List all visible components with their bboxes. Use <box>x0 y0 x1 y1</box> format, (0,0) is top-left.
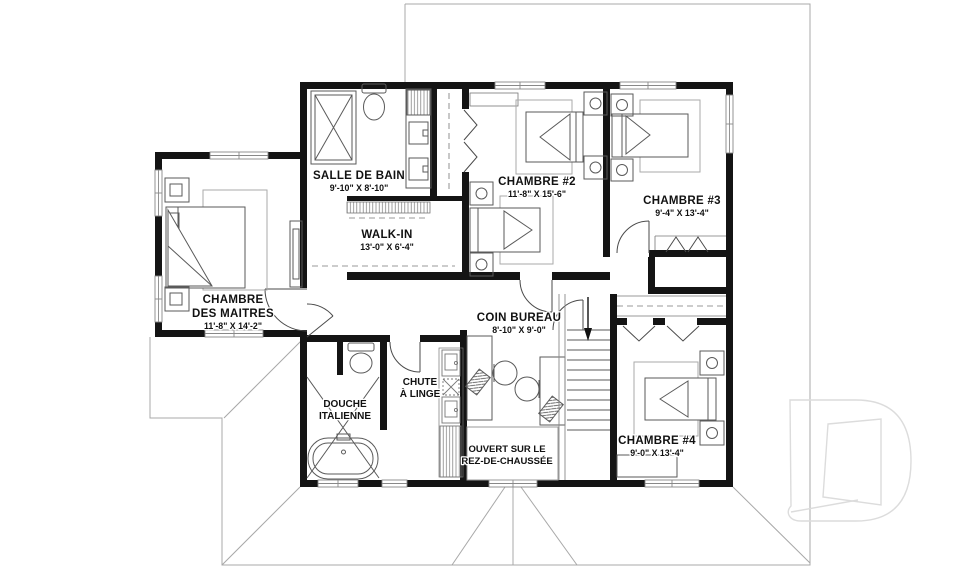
label-douche-line2: ITALIENNE <box>319 411 371 422</box>
door-laundry-vestibule <box>390 342 420 372</box>
wall-laundry-top <box>420 335 467 342</box>
wall-bedroom2-bottom-right <box>552 272 610 280</box>
wall-bedroom4-closet-stub2 <box>653 318 665 325</box>
stair-down-arrow <box>584 297 592 341</box>
floor-plan-drawing: SALLE DE BAIN 9'-10" X 8'-10" WALK-IN 13… <box>0 0 960 569</box>
window <box>645 480 699 487</box>
wall-exterior-left-upper <box>300 89 307 159</box>
wall-walkin-bottom <box>347 272 462 280</box>
wall-vestibule-vertical <box>648 257 655 294</box>
label-master-line1: CHAMBRE <box>203 294 264 306</box>
wall-bathroom-walkin-divider <box>347 196 462 201</box>
window <box>210 152 268 159</box>
wall-corridor-bottom <box>307 335 390 342</box>
wall-bedroom2-left-lower <box>462 172 469 280</box>
window <box>205 330 263 337</box>
door-bedroom2 <box>520 280 552 312</box>
nightstand <box>611 94 633 116</box>
dresser <box>617 455 677 477</box>
window <box>726 95 733 153</box>
staircase <box>559 294 610 480</box>
window <box>155 276 162 322</box>
label-coin-bureau: COIN BUREAU <box>477 312 561 324</box>
label-ouvert-line2: REZ-DE-CHAUSSÉE <box>461 456 552 467</box>
wall-bedroom4-closet-stub3 <box>697 318 733 325</box>
linen-shelves <box>440 426 461 477</box>
label-chambre-4-dims: 9'-0" X 13'-4" <box>630 448 684 458</box>
window <box>318 480 358 487</box>
desk-item <box>466 369 491 395</box>
wall-bedroom3-bottom <box>649 250 733 257</box>
bedroom4-furniture <box>617 351 724 477</box>
floor-plan-page: SALLE DE BAIN 9'-10" X 8'-10" WALK-IN 13… <box>0 0 960 569</box>
chair <box>493 361 517 385</box>
freestanding-bathtub <box>308 434 378 479</box>
window <box>620 82 676 89</box>
label-chute-line1: CHUTE <box>403 377 438 388</box>
laundry-chute <box>443 379 459 395</box>
wall-bedroom4-closet-stub1 <box>617 318 627 325</box>
nightstand <box>165 287 189 311</box>
laundry-unit <box>442 350 460 376</box>
wall-vestibule-horizontal <box>655 287 733 294</box>
bifold-closet-bedroom4 <box>623 326 699 341</box>
chair <box>515 377 539 401</box>
bifold-closet-bedroom2 <box>464 110 477 172</box>
wall-shower-room-right <box>380 342 387 430</box>
vanity-double-sink <box>406 89 431 188</box>
door-suite-passage <box>307 304 333 337</box>
label-douche-line1: DOUCHE <box>323 399 367 410</box>
window <box>489 480 537 487</box>
door-bedroom3 <box>617 221 649 253</box>
toilet <box>362 84 386 120</box>
label-coin-bureau-dims: 8'-10" X 9'-0" <box>492 325 546 335</box>
wall-master-right <box>300 159 307 288</box>
label-chambre-2-dims: 11'-8" X 15'-6" <box>508 189 566 199</box>
label-chambre-3-dims: 9'-4" X 13'-4" <box>655 208 709 218</box>
desk-item <box>539 396 564 422</box>
wall-stair-bedroom4 <box>610 294 617 480</box>
label-salle-de-bain-dims: 9'-10" X 8'-10" <box>330 183 389 193</box>
office-furniture <box>466 336 565 425</box>
label-master-dims: 11'-8" X 14'-2" <box>204 321 262 331</box>
toilet <box>348 343 374 373</box>
label-master-line2: DES MAITRES <box>192 308 274 320</box>
master-bedroom-furniture <box>165 178 302 311</box>
shower-floor-x <box>307 377 379 478</box>
shower <box>311 91 356 164</box>
wall-toilet-nook-stub <box>337 342 343 375</box>
nightstand <box>470 182 493 205</box>
wall-bedroom2-left-upper <box>462 89 469 109</box>
nightstand <box>611 159 633 181</box>
label-chambre-3: CHAMBRE #3 <box>643 195 721 207</box>
wall-exterior-left-lower <box>300 337 307 480</box>
brand-watermark-d-logo <box>788 400 911 521</box>
nightstand <box>700 421 724 445</box>
label-walk-in: WALK-IN <box>361 229 412 241</box>
bedroom3-furniture <box>611 94 700 181</box>
nightstand <box>165 178 189 202</box>
laundry-unit <box>442 397 460 423</box>
window <box>155 170 162 216</box>
label-ouvert-line1: OUVERT SUR LE <box>468 444 545 455</box>
bifold-closet-bedroom3 <box>666 237 708 252</box>
label-salle-de-bain: SALLE DE BAIN <box>313 170 405 182</box>
laundry-strip <box>439 348 463 477</box>
label-walk-in-dims: 13'-0" X 6'-4" <box>360 242 414 252</box>
nightstand <box>700 351 724 375</box>
window <box>382 480 407 487</box>
label-chambre-2: CHAMBRE #2 <box>498 176 576 188</box>
window <box>495 82 545 89</box>
room-labels: SALLE DE BAIN 9'-10" X 8'-10" WALK-IN 13… <box>192 170 721 467</box>
label-chambre-4: CHAMBRE #4 <box>618 435 696 447</box>
label-chute-line2: À LINGE <box>400 387 441 400</box>
